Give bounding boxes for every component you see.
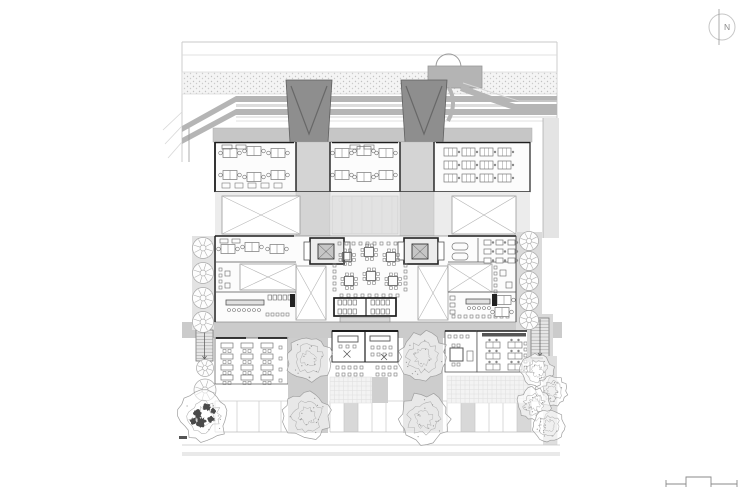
- parking-bay: [344, 401, 358, 432]
- rect: [466, 299, 490, 304]
- site-plan: [163, 42, 568, 456]
- rect: [372, 377, 388, 403]
- stair-west: [196, 330, 213, 361]
- north-arrow: N: [709, 9, 735, 45]
- rect: [492, 294, 497, 306]
- chairrow: [336, 366, 363, 369]
- parking-bay: [461, 401, 475, 432]
- core-east: [404, 238, 438, 264]
- link-shaft-east: [400, 142, 434, 240]
- vlines: [330, 401, 386, 432]
- link-shaft-west: [296, 142, 330, 240]
- atrium-east: [418, 266, 448, 320]
- tree: [193, 263, 214, 284]
- rect: [482, 333, 526, 337]
- north-label: N: [724, 22, 730, 32]
- paved-court: [330, 377, 372, 403]
- tree: [193, 238, 214, 259]
- rect: [304, 242, 310, 260]
- tree: [520, 232, 539, 251]
- rect: [438, 242, 444, 260]
- tree: [193, 288, 214, 309]
- floor-plan-page: N: [0, 0, 744, 500]
- tree: [520, 272, 539, 291]
- line: [163, 112, 182, 130]
- chairrow: [376, 373, 397, 376]
- skylight-east: [452, 196, 516, 234]
- tree: [193, 312, 214, 333]
- tree: [520, 252, 539, 271]
- rect: [398, 242, 404, 260]
- tree: [520, 311, 539, 330]
- btree: [532, 410, 565, 442]
- road: [236, 96, 557, 102]
- servery-counter: [340, 317, 390, 322]
- rect: [182, 452, 560, 456]
- rect: [179, 436, 187, 439]
- skylight-west: [222, 196, 300, 234]
- chairrow: [336, 373, 363, 376]
- floor-plan-canvas: N: [0, 0, 744, 500]
- feature-tree: [178, 390, 227, 443]
- tree: [520, 292, 539, 311]
- north-arrow-circle: [709, 14, 735, 40]
- scale-bar: [666, 477, 737, 487]
- line: [168, 142, 182, 158]
- canopy: [213, 128, 532, 142]
- line: [165, 126, 182, 144]
- chairrow: [376, 366, 397, 369]
- path: [436, 54, 461, 66]
- paved-band: [182, 72, 557, 94]
- ws: [484, 240, 518, 263]
- void-west-wing: [240, 264, 296, 290]
- rect: [543, 118, 559, 238]
- bar-counter: [226, 300, 264, 305]
- void-east-wing: [448, 264, 492, 292]
- rect: [290, 294, 295, 307]
- road: [236, 109, 557, 115]
- tree: [197, 360, 214, 377]
- atrium-west: [296, 266, 326, 320]
